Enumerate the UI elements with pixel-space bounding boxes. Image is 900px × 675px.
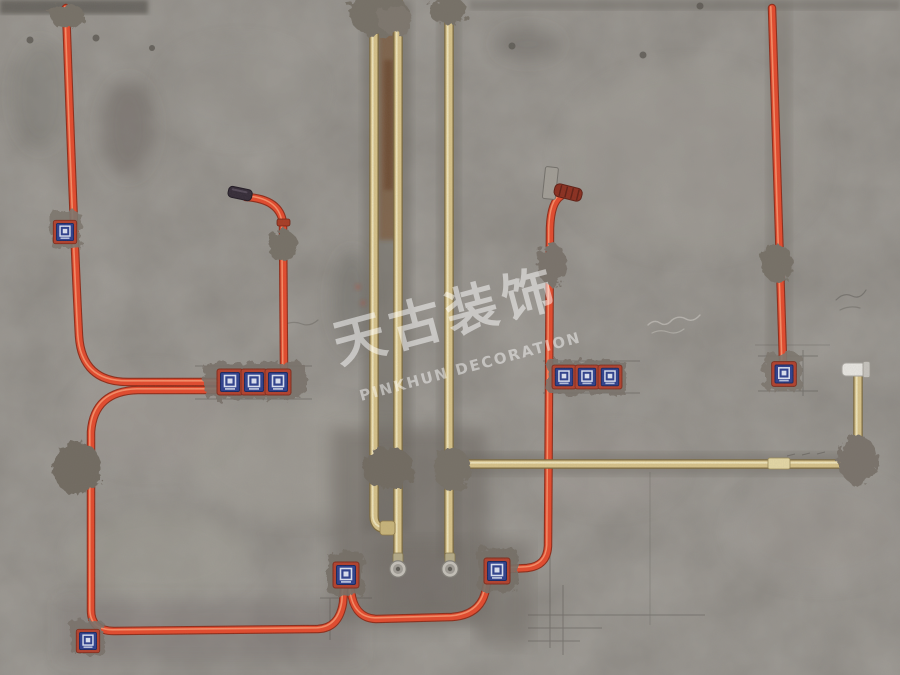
scene-photo: 天古装饰 PINKHUN DECORATION (0, 0, 900, 675)
construction-wall-photo: 天古装饰 PINKHUN DECORATION (0, 0, 900, 675)
